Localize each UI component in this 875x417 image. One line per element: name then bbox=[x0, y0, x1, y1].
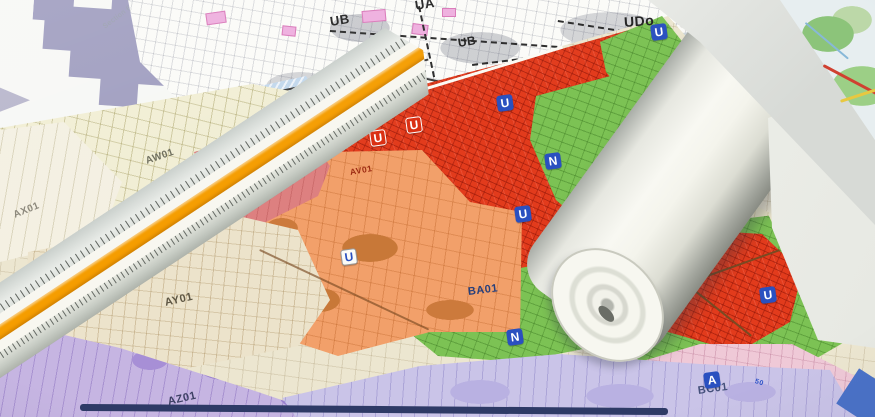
district-label-ub-east: UB bbox=[457, 33, 477, 50]
pink-parcel bbox=[442, 8, 456, 17]
zone-badge-u: U bbox=[496, 94, 514, 112]
pink-parcel bbox=[282, 25, 297, 36]
zone-badge-a: A bbox=[703, 371, 721, 389]
zone-badge-u: U bbox=[650, 23, 668, 41]
zone-badge-n: N bbox=[544, 152, 562, 170]
zone-badge-u: U bbox=[340, 248, 358, 266]
zone-badge-u: U bbox=[514, 205, 532, 223]
zone-badge-n: N bbox=[506, 328, 524, 346]
zone-badge-u: U bbox=[405, 116, 423, 134]
pink-parcel bbox=[362, 9, 387, 23]
zone-badge-u: U bbox=[759, 286, 777, 304]
district-label-ub-west: UB bbox=[329, 11, 351, 29]
photo-of-zoning-maps: Section 6/01 UA UB UB UDo AW01 AX01 AY01… bbox=[0, 0, 875, 417]
